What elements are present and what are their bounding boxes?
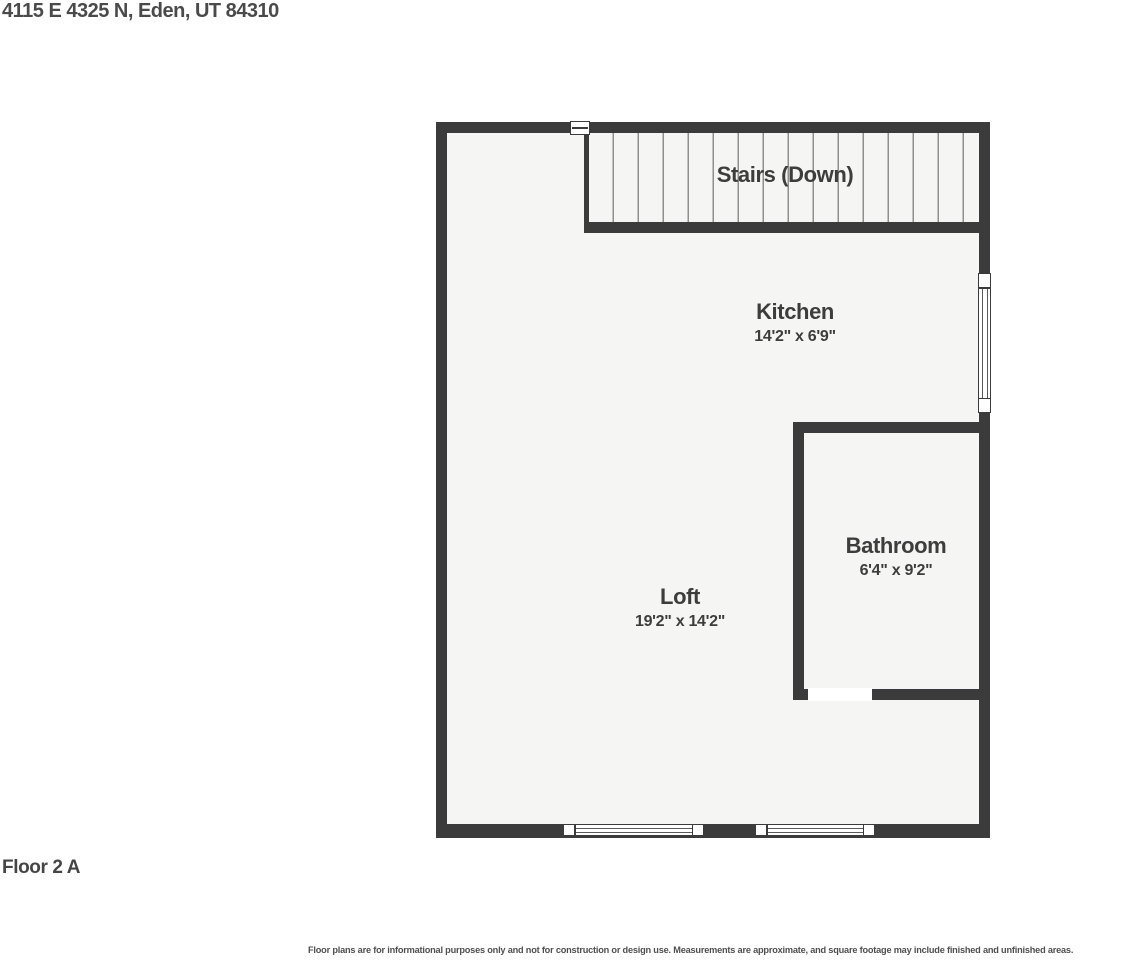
floor-plan bbox=[436, 122, 990, 838]
room-dimensions-bathroom: 6'4" x 9'2" bbox=[796, 559, 996, 583]
window-pane bbox=[576, 828, 692, 833]
page-title: 4115 E 4325 N, Eden, UT 84310 bbox=[2, 0, 279, 24]
bathroom-wall-top bbox=[793, 422, 990, 433]
exterior-wall-bottom bbox=[436, 824, 990, 838]
window-cap bbox=[692, 825, 694, 835]
bathroom-door-opening bbox=[808, 688, 872, 701]
stairs-top-window-icon bbox=[570, 121, 590, 135]
room-dimensions-kitchen: 14'2" x 6'9" bbox=[695, 325, 895, 349]
window-pane bbox=[768, 828, 863, 833]
stairs-bottom-wall bbox=[584, 222, 990, 233]
right-wall-window-icon bbox=[978, 273, 991, 413]
window-pane bbox=[572, 127, 588, 129]
bottom-window-1-icon bbox=[563, 824, 704, 836]
stairs-divider-wall bbox=[584, 133, 589, 222]
room-label-loft: Loft 19'2" x 14'2" bbox=[580, 584, 780, 634]
floor-label: Floor 2 A bbox=[2, 856, 80, 880]
window-pane bbox=[982, 289, 988, 398]
room-name-bathroom: Bathroom bbox=[796, 533, 996, 559]
room-label-stairs: Stairs (Down) bbox=[635, 162, 935, 188]
room-name-loft: Loft bbox=[580, 584, 780, 610]
window-cap bbox=[863, 825, 865, 835]
window-cap bbox=[979, 398, 990, 400]
room-name-kitchen: Kitchen bbox=[695, 299, 895, 325]
room-label-bathroom: Bathroom 6'4" x 9'2" bbox=[796, 533, 996, 583]
room-label-kitchen: Kitchen 14'2" x 6'9" bbox=[695, 299, 895, 349]
room-dimensions-loft: 19'2" x 14'2" bbox=[580, 610, 780, 634]
bottom-window-2-icon bbox=[755, 824, 875, 836]
exterior-wall-top bbox=[436, 122, 990, 133]
floor-plan-page: 4115 E 4325 N, Eden, UT 84310 bbox=[0, 0, 1122, 960]
room-name-stairs: Stairs (Down) bbox=[635, 162, 935, 188]
disclaimer-text: Floor plans are for informational purpos… bbox=[308, 944, 1073, 956]
exterior-wall-left bbox=[436, 122, 447, 838]
